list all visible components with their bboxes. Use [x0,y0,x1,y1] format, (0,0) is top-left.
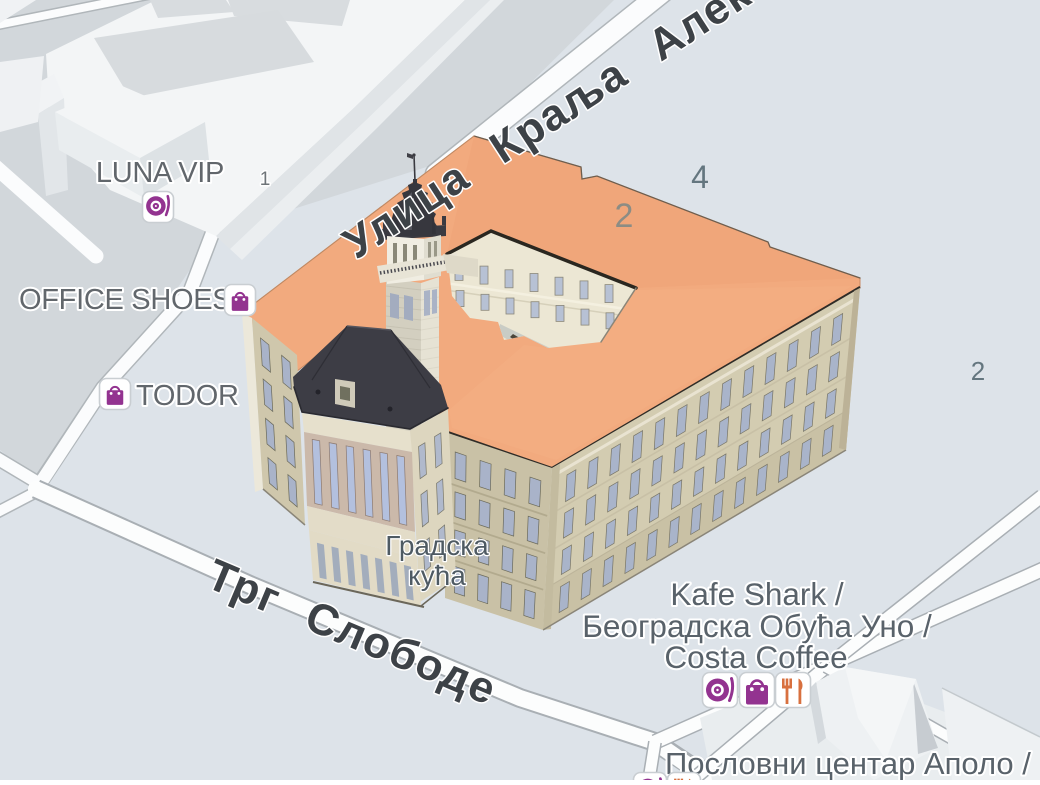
svg-text:TODOR: TODOR [136,380,239,412]
svg-text:LUNA VIP: LUNA VIP [96,157,224,189]
svg-text:2: 2 [615,197,634,235]
svg-text:Kafe Shark /: Kafe Shark / [670,576,844,612]
svg-text:кућа: кућа [408,560,466,591]
svg-text:OFFICE SHOES: OFFICE SHOES [19,284,231,316]
svg-text:4: 4 [691,159,709,195]
svg-text:Пословни центар Аполо /: Пословни центар Аполо / [665,746,1031,780]
svg-text:1: 1 [260,169,271,190]
svg-text:Градска: Градска [385,530,489,561]
svg-text:2: 2 [971,356,985,386]
svg-text:Costa Coffee: Costa Coffee [664,639,847,675]
